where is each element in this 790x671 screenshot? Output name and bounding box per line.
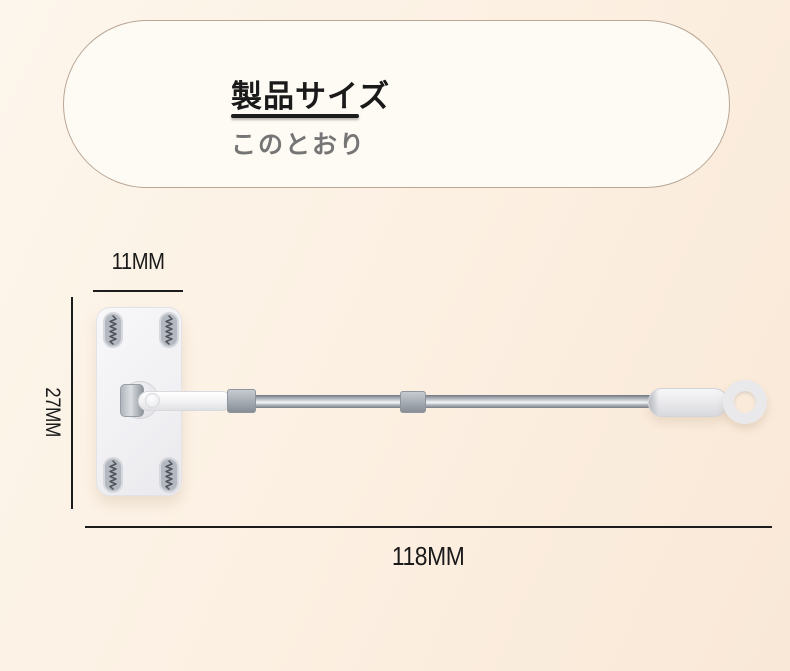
hanging-ring — [723, 380, 767, 424]
velcro-pad-top-left — [103, 312, 123, 348]
zigzag-stitch-icon — [161, 460, 177, 490]
zigzag-stitch-icon — [105, 460, 121, 490]
page-subtitle: このとおり — [231, 125, 366, 161]
grip-socket-shading — [649, 389, 659, 416]
dimension-label-total-length: 118MM — [85, 541, 772, 572]
dimension-value-head-height: 27MM — [40, 387, 64, 437]
grip-handle — [648, 388, 728, 417]
dimension-line-head-width — [93, 290, 183, 292]
dimension-value-head-width: 11MM — [112, 248, 165, 275]
pole-collar-middle — [400, 391, 426, 413]
pole-metal-tube — [254, 395, 656, 408]
dimension-line-total-length — [85, 526, 772, 528]
dimension-label-head-width: 11MM — [93, 248, 183, 275]
zigzag-stitch-icon — [105, 315, 121, 345]
pole-collar-left — [227, 389, 256, 413]
zigzag-stitch-icon — [161, 315, 177, 345]
velcro-pad-bottom-left — [103, 457, 123, 493]
velcro-pad-top-right — [159, 312, 179, 348]
page-title: 製品サイズ — [231, 71, 390, 116]
dimension-value-total-length: 118MM — [392, 541, 464, 572]
velcro-pad-bottom-right — [159, 457, 179, 493]
header-card: 製品サイズ このとおり — [63, 20, 730, 188]
swivel-pivot-cap — [145, 393, 160, 408]
dimension-label-head-height: 27MM — [22, 382, 82, 442]
product-size-infographic: 製品サイズ このとおり 11MM 27MM 118MM — [0, 0, 790, 671]
title-underline — [231, 114, 359, 118]
